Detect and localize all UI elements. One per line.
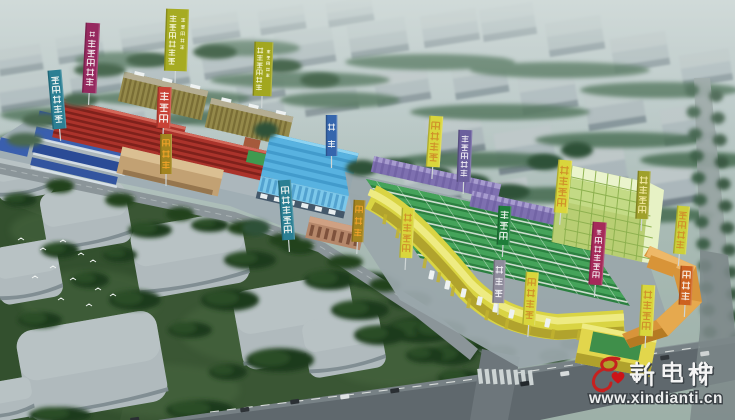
svg-text:www.xindianti.cn: www.xindianti.cn: [588, 390, 723, 407]
